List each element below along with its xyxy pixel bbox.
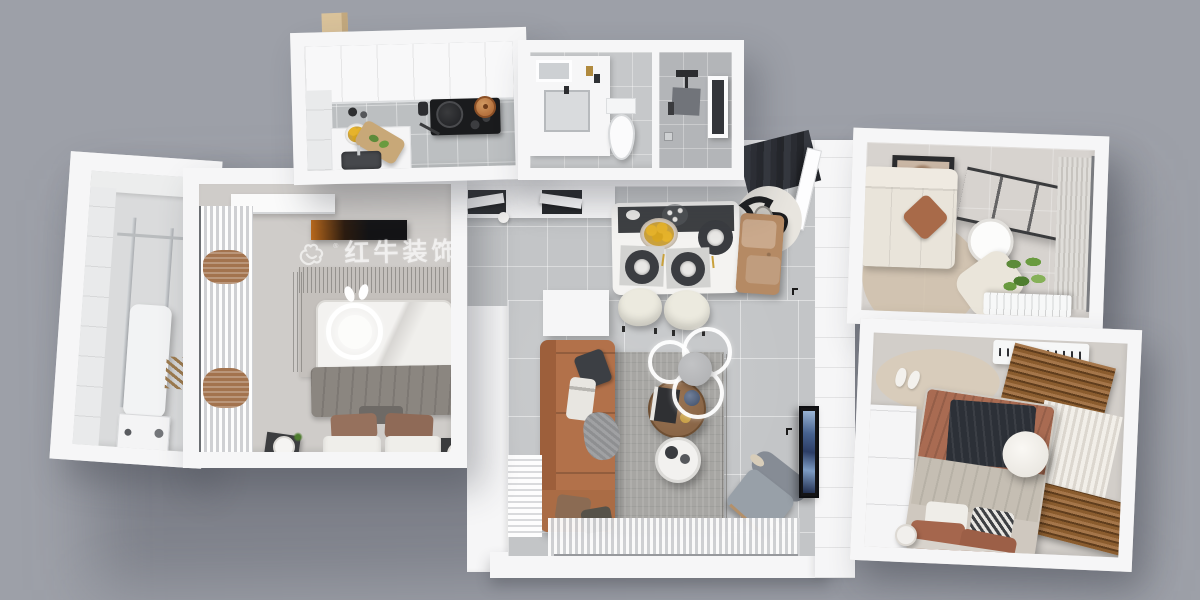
bed-pillow-white: [323, 436, 381, 461]
balcony-side-glazing: [72, 187, 116, 448]
vanity-basin: [544, 90, 590, 132]
fruit-lemons: [644, 222, 674, 246]
runner-plate: [626, 210, 640, 220]
chandelier-disc: [678, 352, 712, 386]
bedroom-rug-fringe-left: [293, 272, 303, 372]
curtain-tieback-2: [203, 368, 249, 408]
coffee-cup: [360, 111, 367, 118]
decor-shape: [301, 245, 323, 265]
kitchen-sink: [341, 151, 381, 170]
room-kitchen: [290, 27, 530, 185]
plate-right: [680, 261, 696, 277]
washer-control-2: [154, 429, 164, 439]
bed2: [902, 386, 1057, 568]
room-bathroom: [518, 40, 744, 180]
bed-headboard: [314, 460, 454, 468]
side-table-white: [655, 437, 701, 483]
drying-rack-panel: [123, 304, 173, 419]
shower-drain: [664, 132, 673, 141]
room-master-bedroom: ® 红牛装饰 HONG NIU DECORATION: [183, 168, 467, 468]
side-console-slats: [508, 455, 542, 537]
nightstand-right: [441, 438, 467, 468]
nightstand-right-lamp: [447, 442, 467, 466]
hall-vase: [498, 212, 509, 223]
bench-cushion-2: [745, 255, 781, 285]
kitchen-left-glazing: [306, 90, 334, 171]
living-tv: [799, 406, 819, 498]
side-table-cup: [680, 454, 690, 464]
nightstand-plant: [293, 432, 303, 442]
door-handle-bedroom2: [786, 428, 792, 435]
room-second-bedroom: [850, 318, 1142, 572]
bathroom-window: [708, 76, 728, 138]
toiletry-2: [594, 74, 600, 83]
sink-faucet: [357, 145, 360, 155]
shower-mat: [671, 87, 700, 115]
living-tv-screen: [803, 411, 815, 493]
study-ac-unit: [983, 292, 1072, 317]
washer-control: [124, 429, 131, 436]
watermark-brand-cn: 红牛装饰: [344, 239, 461, 266]
toiletry: [586, 66, 593, 76]
kitchen-island-box: [543, 290, 609, 336]
coffee-jar: [348, 107, 357, 116]
side-table-bowl: [665, 446, 678, 459]
decor-shape: ® 红牛装饰: [297, 238, 461, 267]
bedroom-tv: [311, 220, 407, 240]
vanity-faucet: [564, 86, 569, 94]
chair-leg-2: [654, 328, 657, 334]
bedroom-curtains: [201, 206, 253, 452]
watermark-registered-mark: ®: [333, 242, 338, 249]
wall-right-corridor: [815, 140, 855, 578]
toilet-bowl: [608, 114, 635, 160]
chair-leg: [622, 326, 625, 332]
floorplan-scene: ® 红牛装饰 HONG NIU DECORATION: [0, 0, 1200, 600]
plate-left: [634, 259, 650, 275]
bed-pillow-white-2: [385, 436, 441, 461]
room-study: [847, 128, 1110, 333]
chair-leg-3: [672, 330, 675, 336]
shower-handheld: [668, 102, 674, 115]
bedroom-rug-fringe-top: [299, 267, 463, 293]
drying-rack-bar: [117, 233, 187, 241]
bed-ring-lamp-disc: [338, 315, 372, 349]
vanity-mirror: [536, 60, 572, 82]
kettle: [418, 102, 428, 116]
bull-icon: [297, 241, 328, 268]
door-handle-study: [792, 288, 798, 295]
bench-cushion: [741, 219, 777, 249]
bedroom-rug-fringe-right: [459, 272, 467, 372]
shower-head: [676, 70, 698, 77]
plate-top: [707, 229, 724, 246]
core-area: [450, 140, 855, 578]
toilet-tank: [606, 98, 636, 114]
copper-pot-knob: [483, 104, 488, 109]
curtain-rail: [554, 554, 798, 556]
wall-left-lower: [467, 296, 508, 572]
shower-divider-wall: [652, 52, 659, 168]
washing-machine: [116, 413, 170, 453]
living-curtains: [548, 518, 800, 556]
nightstand-left-tray: [273, 436, 295, 458]
curtain-tieback: [203, 250, 249, 284]
